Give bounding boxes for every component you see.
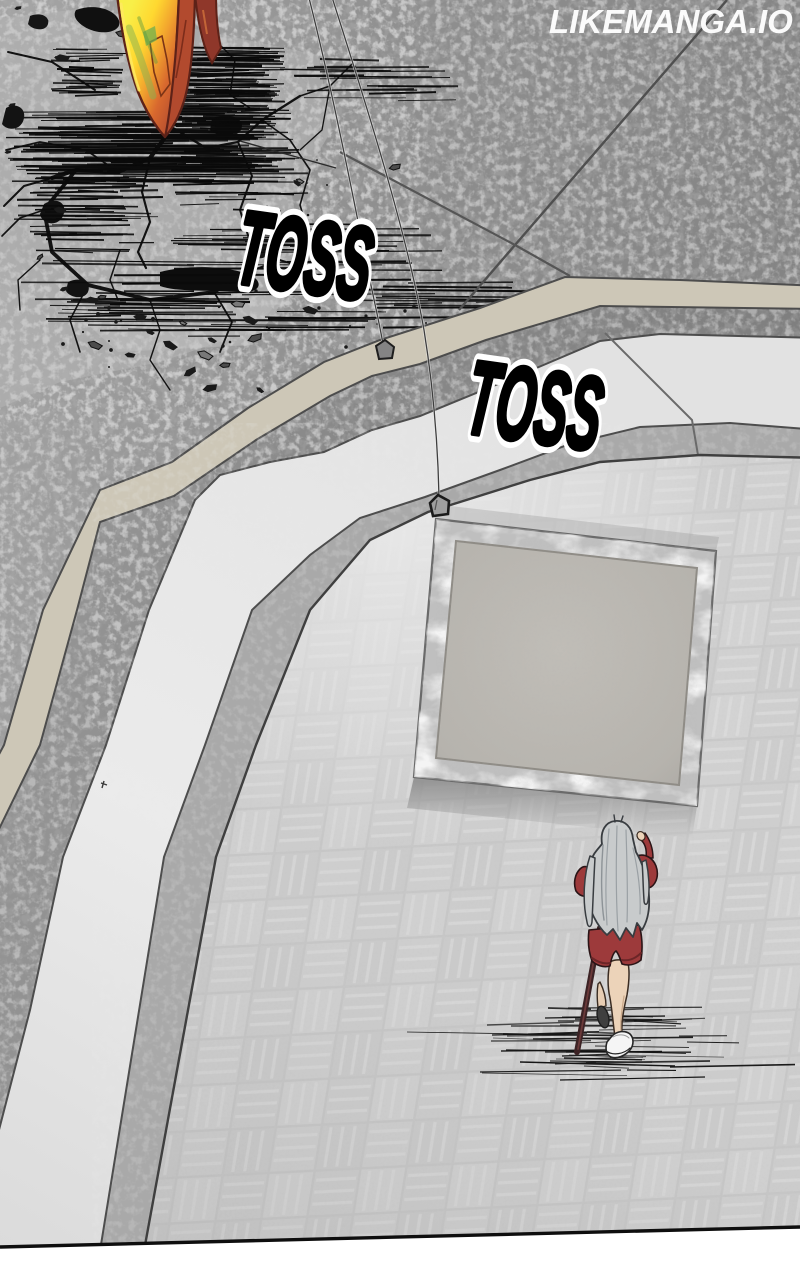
svg-text:TOSS: TOSS — [460, 340, 610, 474]
svg-text:TOSS: TOSS — [230, 190, 380, 324]
svg-text:LIKEMANGA.IO: LIKEMANGA.IO — [549, 3, 793, 40]
